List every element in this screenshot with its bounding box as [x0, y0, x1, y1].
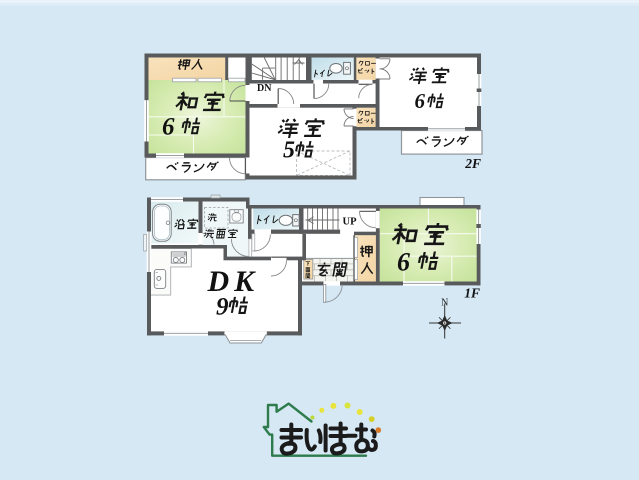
svg-text:6: 6 [162, 114, 175, 141]
svg-text:2F: 2F [464, 156, 481, 171]
svg-text:6: 6 [397, 248, 410, 277]
svg-text:5: 5 [283, 138, 295, 164]
svg-text:9: 9 [216, 294, 229, 321]
svg-text:UP: UP [343, 217, 358, 228]
svg-text:6: 6 [415, 89, 426, 113]
svg-text:DK: DK [207, 265, 260, 298]
svg-text:DN: DN [257, 83, 272, 94]
svg-text:1F: 1F [464, 286, 480, 301]
svg-text:N: N [441, 298, 448, 309]
